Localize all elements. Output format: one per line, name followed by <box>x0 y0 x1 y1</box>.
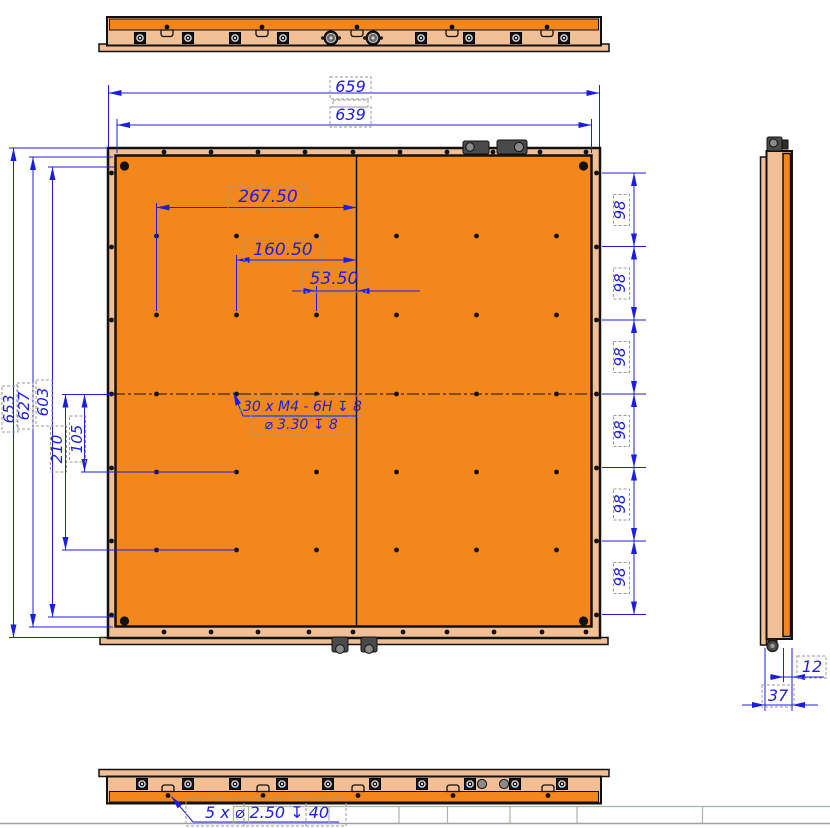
dim-edge-pitch-2: 98 <box>613 268 629 298</box>
dim-hole-x-outer: 267.50 <box>230 189 306 207</box>
dim-panel-height: 627 <box>17 384 33 428</box>
dim-side-total-thickness: 37 <box>764 688 792 705</box>
callout-thread-line1: 30 x M4 - 6H ↧ 8 <box>243 400 357 415</box>
dim-edge-pitch-1: 98 <box>613 195 629 225</box>
top-view <box>99 17 609 52</box>
dim-hole-y-outer: 210 <box>50 427 66 471</box>
dim-side-panel-thickness: 12 <box>799 659 825 676</box>
callout-thread-line2: ⌀ 3.30 ↧ 8 <box>252 418 350 433</box>
dim-hole-y-inner: 105 <box>70 417 86 461</box>
bottom-view <box>99 770 609 804</box>
side-view-top-latch <box>767 137 788 151</box>
dim-panel-width: 639 <box>330 107 371 124</box>
dim-hole-x-inner: 53.50 <box>304 271 364 289</box>
dim-mount-span: 603 <box>36 380 52 424</box>
dim-hole-x-mid: 160.50 <box>246 242 320 260</box>
title-block-lines <box>0 807 830 824</box>
side-view-bottom-screw <box>767 639 778 652</box>
dim-edge-pitch-4: 98 <box>613 415 629 445</box>
drawing-linework <box>0 0 830 828</box>
dim-edge-pitch-6: 98 <box>613 562 629 592</box>
side-view <box>761 137 793 652</box>
drawing-canvas: 659 639 267.50 160.50 53.50 30 x M4 - 6H… <box>0 0 830 828</box>
front-view <box>100 140 608 653</box>
dim-edge-pitch-3: 98 <box>613 342 629 372</box>
callout-bottom-holes: 5 x ⌀ 2.50 ↧ 40 <box>196 805 338 822</box>
dim-edge-pitch-5: 98 <box>613 489 629 519</box>
dim-overall-width: 659 <box>330 79 371 96</box>
